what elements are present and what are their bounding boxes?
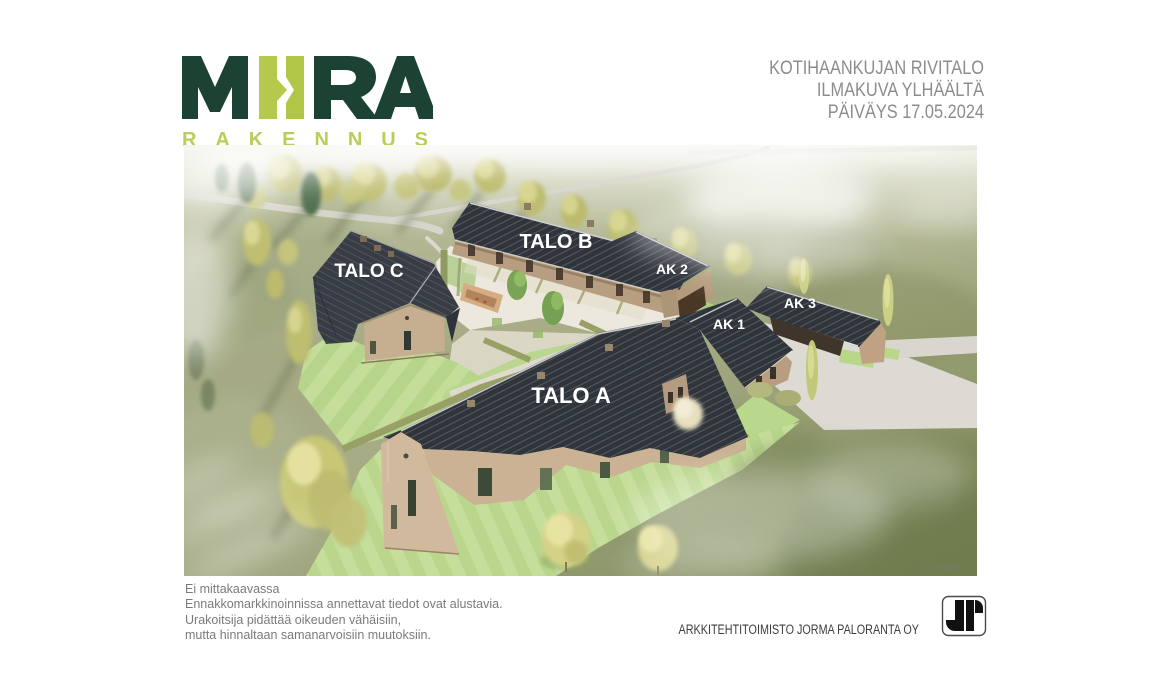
svg-text:TALO B: TALO B	[520, 231, 593, 253]
svg-text:TALO C: TALO C	[334, 261, 404, 282]
svg-text:AK 1: AK 1	[713, 316, 745, 332]
svg-text:AK 3: AK 3	[784, 295, 816, 311]
svg-text:TALO A: TALO A	[531, 383, 611, 408]
svg-text:17.05.2024: 17.05.2024	[923, 565, 958, 572]
svg-text:AK 2: AK 2	[656, 261, 688, 277]
